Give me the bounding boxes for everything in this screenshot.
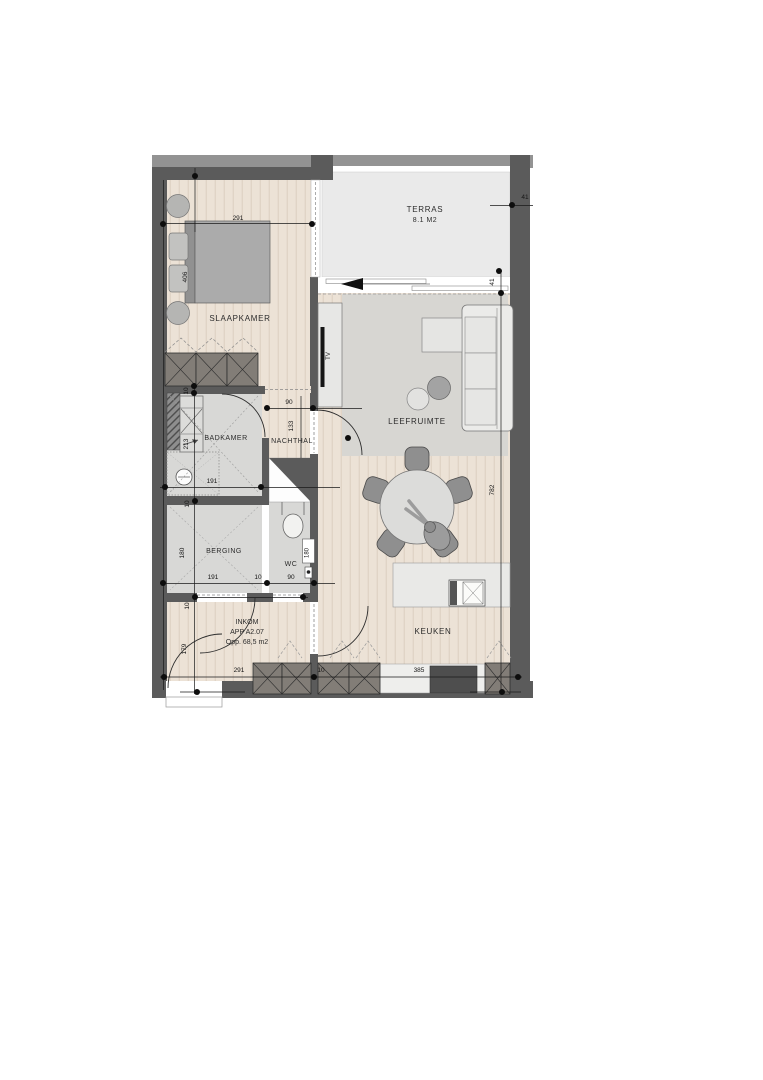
dim-text: 133	[288, 420, 295, 431]
coffee-table-dark	[428, 377, 451, 400]
sofa-cushion	[465, 389, 496, 425]
dim-text: 41	[489, 278, 496, 286]
entry-door-gap	[166, 681, 222, 698]
nachthal-floor	[262, 386, 310, 458]
dimension-dot	[191, 383, 197, 389]
shaft-hatch	[167, 393, 180, 450]
dimension-dot	[498, 290, 504, 296]
dim-text: 291	[233, 215, 244, 222]
dimension-dot	[311, 580, 317, 586]
toilet	[283, 514, 303, 538]
tv-screen	[321, 327, 325, 387]
dimension-dot	[309, 221, 315, 227]
dimension-dot	[310, 405, 316, 411]
dimension-dot	[496, 268, 502, 274]
dimension-dot	[192, 498, 198, 504]
wc-label: WC	[285, 561, 298, 568]
dim-text: 213	[183, 438, 190, 449]
dim-text: 782	[489, 484, 496, 495]
dimension-dot	[258, 484, 264, 490]
dimension-dot	[300, 594, 306, 600]
entry-threshold	[166, 697, 222, 707]
inkom-label: INKOM	[236, 619, 259, 626]
dimension-dot	[192, 594, 198, 600]
dim-text: 191	[208, 574, 219, 581]
dim-text: 90	[285, 399, 293, 406]
terras-area-label: 8.1 M2	[413, 217, 437, 224]
coffee-table-light	[407, 388, 429, 410]
side-table	[422, 318, 462, 352]
dimension-dot	[194, 689, 200, 695]
dimension-dot	[499, 689, 505, 695]
wc-valve	[307, 570, 311, 574]
wall-left	[152, 167, 167, 698]
dim-text: 10	[183, 387, 190, 395]
dimension-dot	[311, 674, 317, 680]
dimension-dot	[509, 202, 515, 208]
tv-label: TV	[326, 352, 332, 360]
dimension-dot	[160, 221, 166, 227]
keuken-label: KEUKEN	[414, 627, 451, 636]
terras-label: TERRAS	[407, 205, 444, 214]
dimension-dot	[162, 484, 168, 490]
wall-badkamer-berging	[152, 496, 269, 505]
dim-text: 406	[182, 271, 189, 282]
dim-text: 10	[184, 602, 191, 610]
person-head	[425, 522, 436, 533]
dimension-dot	[264, 580, 270, 586]
dim-text: 90	[287, 574, 295, 581]
dim-text: 10	[254, 574, 262, 581]
dim-text: 10	[184, 500, 191, 508]
sofa-cushion	[465, 353, 496, 389]
terras-floor	[322, 172, 510, 277]
dim-text: 10	[317, 667, 325, 674]
dim-text: 385	[414, 667, 425, 674]
dim-text: 41	[521, 194, 529, 201]
dimension-dot	[345, 435, 351, 441]
nightstand	[167, 195, 190, 218]
dim-text: 180	[305, 547, 311, 558]
kitchen-faucet	[450, 581, 457, 605]
oven-appliance	[430, 666, 477, 693]
dimension-dot	[160, 580, 166, 586]
floor-plan: SLAAPKAMER TERRAS 8.1 M2 LEEFRUIMTE BADK…	[0, 0, 763, 1080]
dimension-dot	[161, 674, 167, 680]
dimension-dot	[264, 405, 270, 411]
apartment-code-label: APP A2.07	[230, 629, 264, 636]
dimension-dot	[515, 674, 521, 680]
dining-chair	[405, 447, 429, 471]
wall-top-bedroom	[152, 167, 333, 180]
berging-label: BERGING	[206, 548, 242, 555]
leefruimte-label: LEEFRUIMTE	[388, 417, 446, 426]
dimension-dot	[192, 173, 198, 179]
dim-text: 191	[207, 478, 218, 485]
apartment-area-label: Opp. 68,5 m2	[226, 639, 269, 646]
slaapkamer-label: SLAAPKAMER	[209, 314, 270, 323]
wardrobe	[165, 353, 258, 386]
bed-pillow	[169, 233, 188, 260]
sofa-cushion	[465, 317, 496, 353]
dimension-dot	[191, 390, 197, 396]
wall-sliding-block	[310, 277, 318, 293]
nachthal-label: NACHTHAL	[271, 438, 313, 445]
sliding-panel-1	[326, 279, 426, 284]
bed	[195, 221, 270, 303]
nightstand	[167, 302, 190, 325]
wall-living-left-a	[310, 293, 318, 411]
dim-text: 180	[179, 547, 186, 558]
badkamer-label: BADKAMER	[204, 435, 247, 442]
terrace-railing-gap	[318, 166, 512, 172]
dim-text: 291	[234, 667, 245, 674]
sliding-panel-2	[412, 286, 508, 291]
dim-text: 179	[181, 643, 188, 654]
wall-corner-block	[311, 155, 333, 180]
